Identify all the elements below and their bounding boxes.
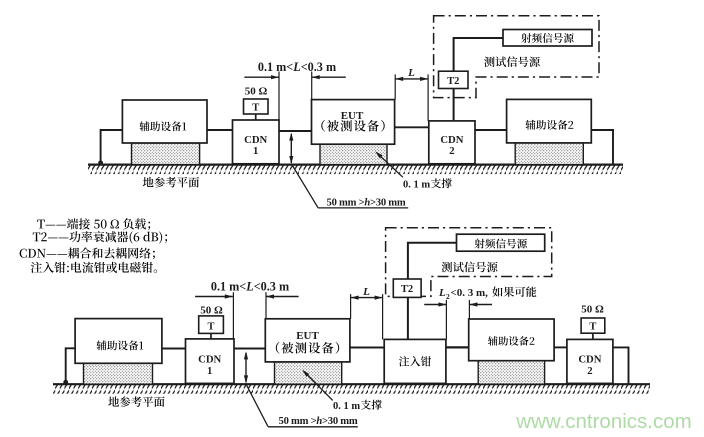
svg-text:L: L xyxy=(407,67,415,79)
svg-text:<0. 3 m,: <0. 3 m, xyxy=(451,287,489,299)
svg-text:50 Ω: 50 Ω xyxy=(200,305,223,317)
svg-text:T: T xyxy=(589,322,596,333)
svg-text:0.1 m<L<0.3 m: 0.1 m<L<0.3 m xyxy=(211,280,289,294)
svg-text:0. 1 m: 0. 1 m xyxy=(333,401,360,412)
svg-text:50 mm >h>30 mm: 50 mm >h>30 mm xyxy=(279,416,358,427)
svg-text:50 Ω: 50 Ω xyxy=(581,304,604,316)
svg-text:2: 2 xyxy=(446,292,450,301)
svg-text:www.cntronics.com: www.cntronics.com xyxy=(515,410,691,433)
svg-text:CDN: CDN xyxy=(198,353,221,365)
svg-text:1: 1 xyxy=(253,145,258,157)
svg-text:0. 1 m: 0. 1 m xyxy=(403,179,430,190)
svg-text:L: L xyxy=(438,287,446,299)
svg-text:0.1 m<L<0.3 m: 0.1 m<L<0.3 m xyxy=(258,60,336,74)
svg-text:EUT: EUT xyxy=(296,330,319,342)
svg-text:L: L xyxy=(362,286,370,298)
svg-text:50 mm >h>30 mm: 50 mm >h>30 mm xyxy=(327,198,406,209)
svg-text:T: T xyxy=(252,103,259,114)
svg-text:CDN: CDN xyxy=(578,353,601,365)
svg-text:T2: T2 xyxy=(401,284,413,295)
svg-text:EUT: EUT xyxy=(341,110,364,122)
svg-text:2: 2 xyxy=(449,145,454,157)
svg-text:T2: T2 xyxy=(447,76,459,87)
svg-text:2: 2 xyxy=(587,365,592,377)
svg-text:50 Ω: 50 Ω xyxy=(245,86,268,98)
svg-text:1: 1 xyxy=(207,365,212,377)
svg-text:T: T xyxy=(207,322,214,333)
